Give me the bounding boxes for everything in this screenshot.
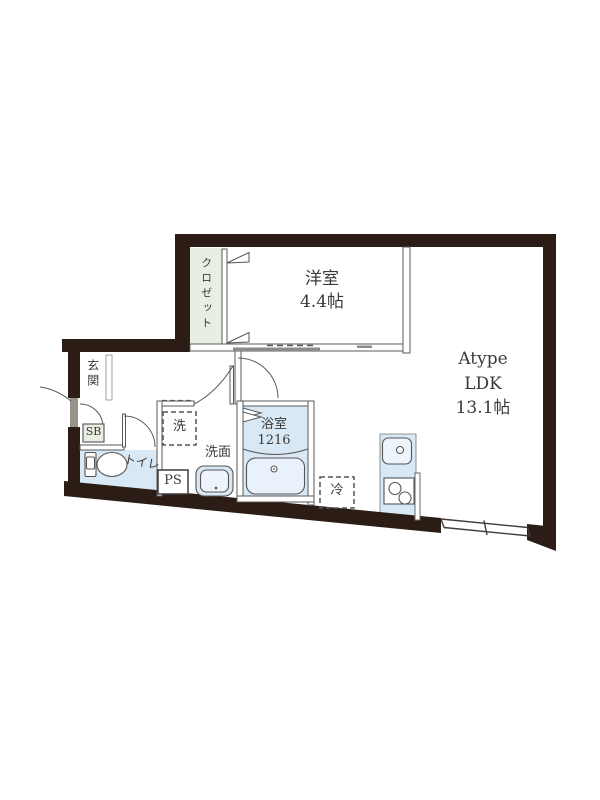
wall-bath-top <box>237 401 314 406</box>
wall-right <box>543 234 556 546</box>
wall-hall-ldk <box>235 351 241 404</box>
stove-burner-1 <box>389 483 401 495</box>
refrigerator-label: 冷 <box>320 484 354 499</box>
ldk-size: 13.1帖 <box>433 399 533 419</box>
closet-front <box>222 249 227 345</box>
floor-plan: クロゼット 玄関 洋室 4.4帖 Atype LDK 13.1帖 SB トイレ … <box>0 0 600 800</box>
washroom-label: 洗面 <box>197 446 239 461</box>
ldk-type: Atype <box>433 350 533 370</box>
western-room-label: 洋室 <box>272 270 372 290</box>
closet-door-mark-top <box>227 253 249 264</box>
bathroom-size: 1216 <box>246 434 302 449</box>
toilet-lid <box>87 457 95 469</box>
wall-bath-bottom <box>237 496 314 502</box>
shoe-box-label: SB <box>83 426 104 439</box>
washing-machine-label: 洗 <box>163 420 196 435</box>
bedroom-sliding-door <box>162 346 372 401</box>
pipe-space-label: PS <box>158 474 188 489</box>
ldk-door-arc <box>238 358 278 398</box>
entrance-step-line <box>106 355 112 400</box>
wall-closet-left <box>175 234 190 352</box>
toilet-door-arc <box>124 416 155 447</box>
wall-entrance-top <box>62 339 190 352</box>
kitchen-faucet <box>397 447 404 454</box>
wall-partition-bedroom-ldk <box>403 247 410 353</box>
entrance-door-leaf <box>70 398 78 427</box>
washstand-drain <box>215 487 218 490</box>
stove-burner-2 <box>399 492 411 504</box>
sliding-door-panel <box>233 348 320 352</box>
entrance-door-outer-arc <box>40 387 71 401</box>
ldk-name: LDK <box>433 375 533 395</box>
wall-top <box>178 234 556 247</box>
wall-left-upper <box>68 351 80 398</box>
toilet-door-leaf <box>123 414 126 447</box>
wall-bath-right <box>308 401 314 505</box>
bathtub <box>247 458 305 494</box>
closet-label: クロゼット <box>199 257 212 332</box>
washroom-door-arc <box>194 366 233 404</box>
entrance-label: 玄関 <box>85 359 99 389</box>
bathtub-drain-dot <box>273 468 275 470</box>
window-cap-left <box>441 519 444 528</box>
washroom-door-leaf <box>230 366 234 404</box>
washstand-basin <box>201 470 229 492</box>
sliding-door-track <box>357 346 372 349</box>
wall-corner-bottom-right <box>527 524 556 551</box>
western-room-size: 4.4帖 <box>272 293 372 313</box>
ldk-label: Atype LDK 13.1帖 <box>433 350 533 424</box>
ldk-window <box>441 519 530 536</box>
wall-left-lower <box>68 427 80 487</box>
wall-toilet-top <box>80 445 124 450</box>
closet-door-marks <box>227 253 249 344</box>
wall-washroom-top <box>157 401 194 406</box>
kitchen-partition-stub <box>415 473 420 520</box>
bathroom-label: 浴室 <box>246 418 302 433</box>
closet-door-mark-bottom <box>227 333 249 344</box>
